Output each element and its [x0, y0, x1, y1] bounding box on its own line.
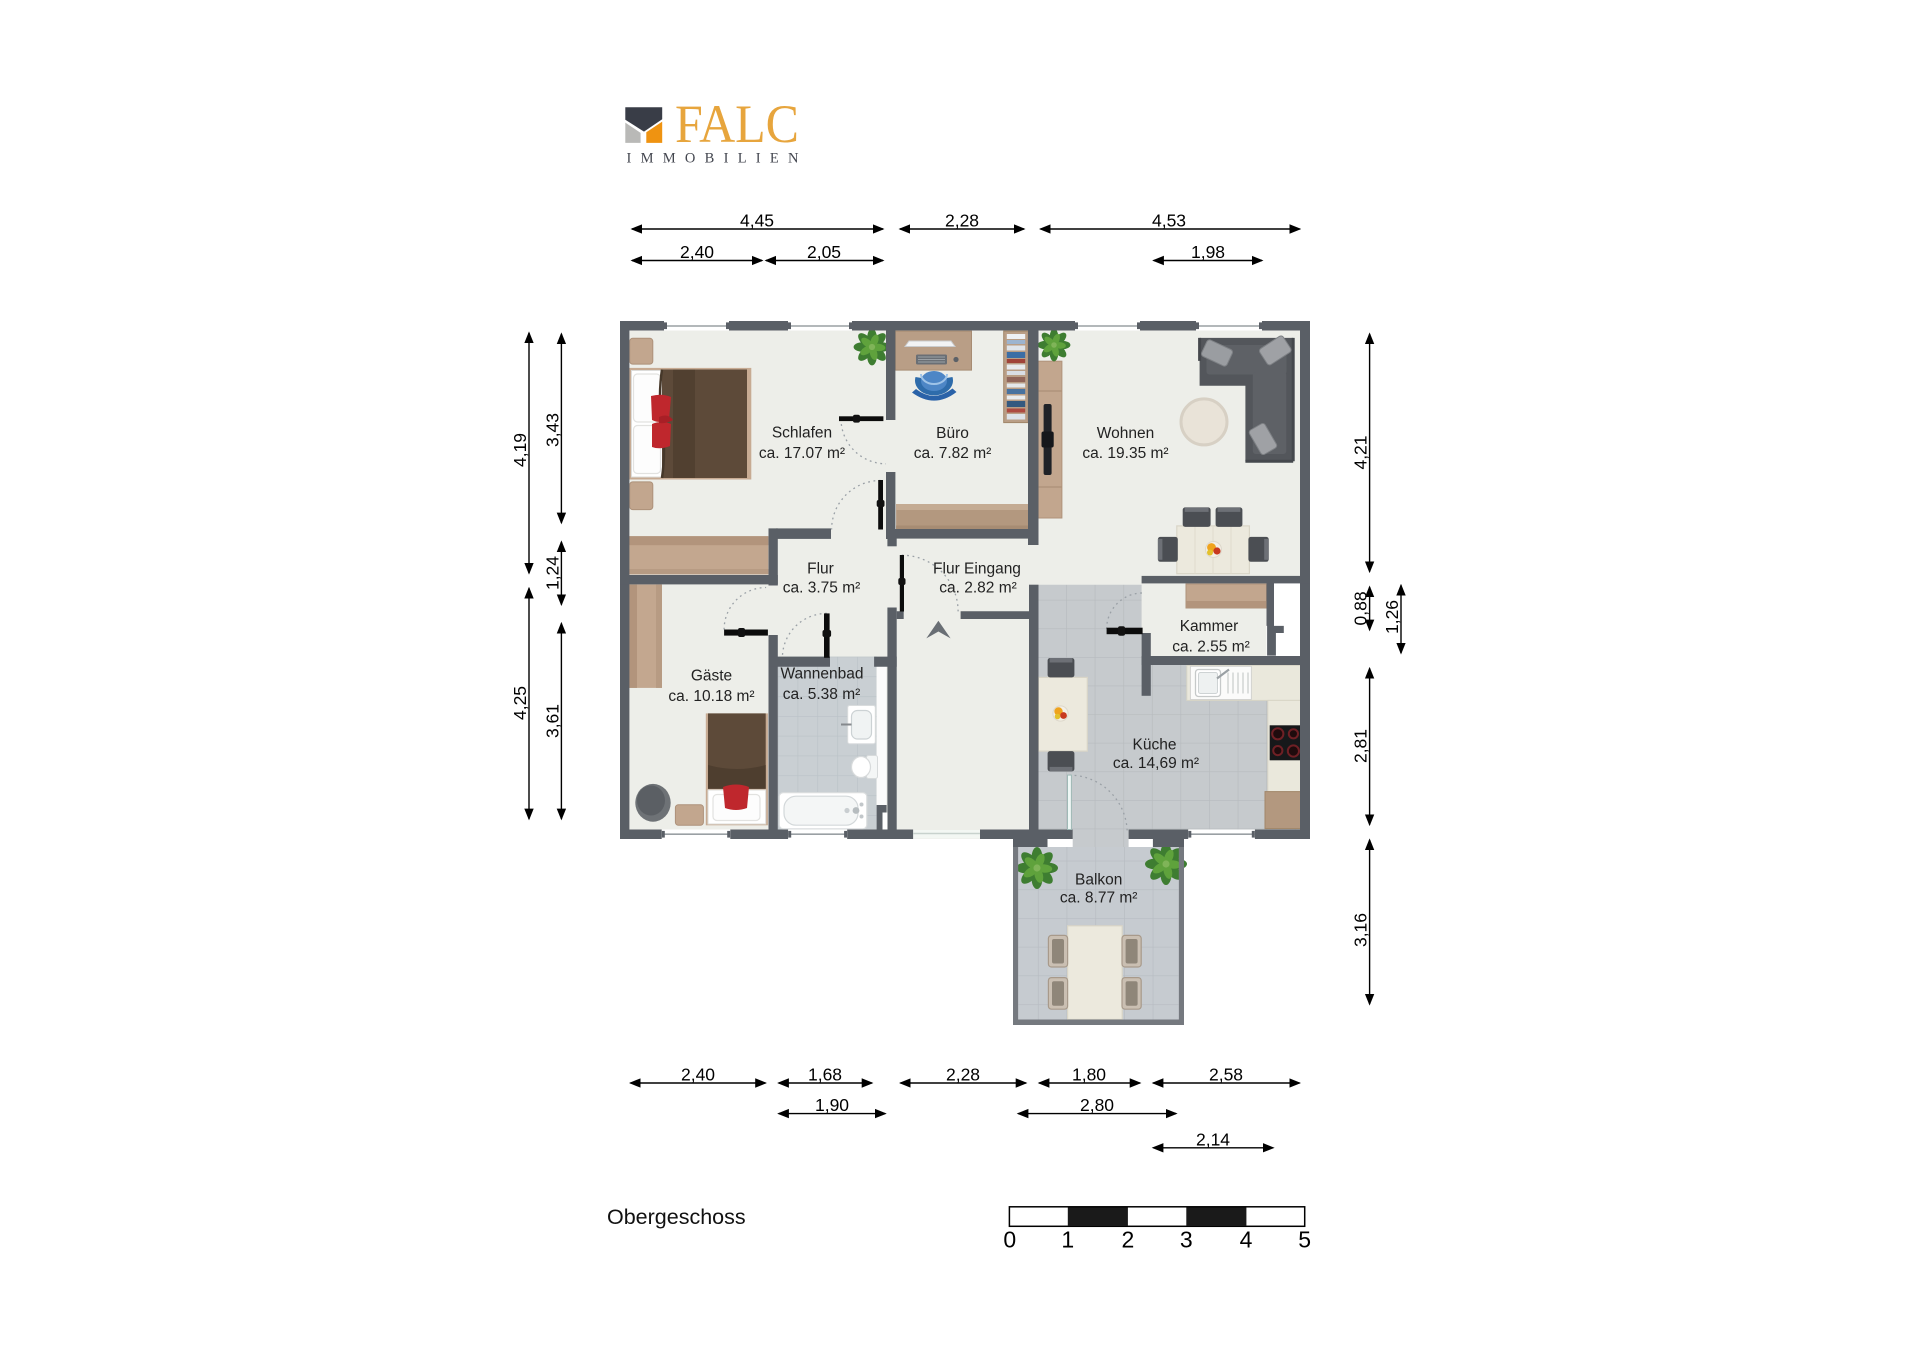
svg-text:2,28: 2,28	[945, 211, 979, 231]
svg-text:2,40: 2,40	[681, 1065, 715, 1085]
svg-text:ca. 7.82 m²: ca. 7.82 m²	[914, 445, 992, 462]
svg-text:Wannenbad: Wannenbad	[780, 666, 863, 683]
svg-text:1: 1	[1061, 1227, 1074, 1253]
svg-text:FALC: FALC	[675, 94, 799, 154]
svg-text:5: 5	[1298, 1227, 1311, 1253]
svg-text:4,25: 4,25	[510, 686, 530, 720]
svg-text:2,28: 2,28	[946, 1065, 980, 1085]
svg-text:2,40: 2,40	[680, 242, 714, 262]
svg-text:1,90: 1,90	[815, 1095, 849, 1115]
svg-text:4,21: 4,21	[1351, 435, 1371, 469]
svg-text:ca. 10.18 m²: ca. 10.18 m²	[668, 688, 754, 705]
svg-text:Flur: Flur	[807, 561, 834, 578]
svg-text:ca. 17.07 m²: ca. 17.07 m²	[759, 445, 845, 462]
svg-text:2,58: 2,58	[1209, 1065, 1243, 1085]
svg-text:1,26: 1,26	[1382, 600, 1402, 634]
svg-text:4,19: 4,19	[510, 433, 530, 467]
svg-text:2,14: 2,14	[1196, 1129, 1230, 1149]
svg-text:Küche: Küche	[1133, 737, 1177, 754]
svg-text:Büro: Büro	[936, 425, 969, 442]
svg-text:ca. 19.35 m²: ca. 19.35 m²	[1082, 445, 1168, 462]
svg-text:2,80: 2,80	[1080, 1095, 1114, 1115]
svg-text:ca. 2.55 m²: ca. 2.55 m²	[1172, 638, 1250, 655]
svg-text:2,81: 2,81	[1351, 729, 1371, 763]
svg-text:Schlafen: Schlafen	[772, 425, 832, 442]
svg-text:3,61: 3,61	[542, 704, 562, 738]
svg-text:ca. 14,69 m²: ca. 14,69 m²	[1113, 755, 1199, 772]
svg-text:3: 3	[1180, 1227, 1193, 1253]
svg-text:3,43: 3,43	[542, 413, 562, 447]
svg-text:1,98: 1,98	[1191, 242, 1225, 262]
svg-text:Flur Eingang: Flur Eingang	[933, 561, 1021, 578]
svg-text:0: 0	[1003, 1227, 1016, 1253]
svg-text:Wohnen: Wohnen	[1097, 425, 1154, 442]
svg-text:1,68: 1,68	[808, 1065, 842, 1085]
svg-text:2,05: 2,05	[807, 242, 841, 262]
svg-text:3,16: 3,16	[1351, 913, 1371, 947]
svg-text:4: 4	[1240, 1227, 1253, 1253]
svg-text:1,80: 1,80	[1072, 1065, 1106, 1085]
svg-text:ca. 8.77 m²: ca. 8.77 m²	[1060, 890, 1138, 907]
svg-text:ca. 3.75 m²: ca. 3.75 m²	[783, 580, 861, 597]
svg-text:4,45: 4,45	[740, 211, 774, 231]
svg-text:Obergeschoss: Obergeschoss	[607, 1205, 746, 1229]
svg-text:Gäste: Gäste	[691, 668, 732, 685]
svg-text:1,24: 1,24	[542, 556, 562, 590]
svg-text:Kammer: Kammer	[1180, 618, 1239, 635]
svg-text:ca. 5.38 m²: ca. 5.38 m²	[783, 686, 861, 703]
svg-text:IMMOBILIEN: IMMOBILIEN	[627, 151, 800, 167]
svg-text:ca. 2.82 m²: ca. 2.82 m²	[939, 580, 1017, 597]
svg-text:0,88: 0,88	[1351, 591, 1371, 625]
svg-text:2: 2	[1122, 1227, 1135, 1253]
svg-text:4,53: 4,53	[1152, 211, 1186, 231]
svg-text:Balkon: Balkon	[1075, 872, 1122, 889]
